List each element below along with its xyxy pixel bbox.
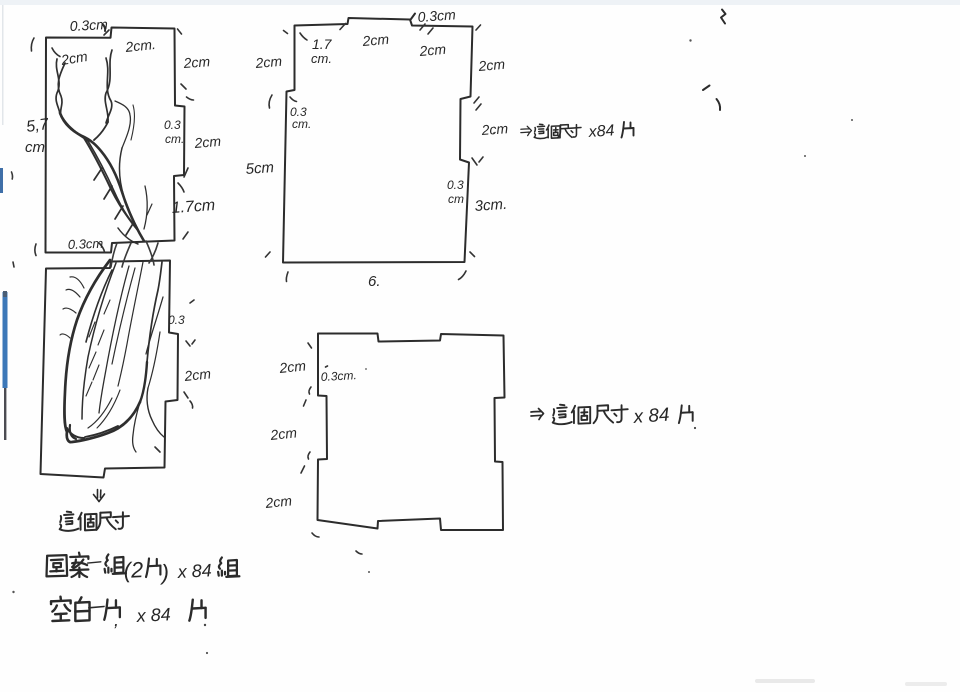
svg-text:,: , — [114, 610, 119, 630]
svg-text:2cm: 2cm — [183, 365, 212, 384]
svg-text:2cm: 2cm — [182, 53, 211, 71]
svg-text:2cm: 2cm — [269, 424, 298, 443]
svg-text:2cm: 2cm — [361, 31, 390, 49]
svg-text:cm.: cm. — [292, 117, 311, 131]
svg-text:x 84: x 84 — [632, 405, 670, 429]
svg-text:2cm: 2cm — [264, 492, 293, 511]
svg-text:cm: cm — [25, 139, 45, 156]
svg-text:x 84: x 84 — [135, 604, 171, 626]
svg-text:2cm.: 2cm. — [124, 36, 157, 55]
svg-text:2cm: 2cm — [254, 53, 283, 71]
svg-text:cm.: cm. — [165, 132, 184, 146]
svg-text:x84: x84 — [587, 122, 615, 141]
svg-text:cm.: cm. — [311, 51, 332, 66]
svg-text:0.3: 0.3 — [168, 313, 185, 327]
svg-text:0.3: 0.3 — [447, 178, 464, 192]
svg-text:0.3cm: 0.3cm — [68, 236, 104, 252]
svg-text:2cm: 2cm — [193, 133, 222, 151]
svg-text:1.7: 1.7 — [312, 36, 333, 52]
svg-text:0.3cm.: 0.3cm. — [320, 368, 357, 384]
svg-text:3cm.: 3cm. — [474, 196, 508, 215]
svg-text:5cm: 5cm — [245, 159, 274, 178]
svg-text:1.7cm: 1.7cm — [171, 197, 216, 217]
svg-text:2cm: 2cm — [278, 357, 307, 376]
svg-text:5,7: 5,7 — [25, 116, 50, 136]
svg-text:0.3cm: 0.3cm — [417, 6, 456, 25]
svg-text:2cm: 2cm — [418, 41, 447, 59]
svg-text:2cm: 2cm — [480, 120, 509, 138]
svg-text:x 84: x 84 — [176, 560, 212, 582]
svg-text:(2: (2 — [123, 557, 144, 583]
svg-text:2cm: 2cm — [477, 56, 506, 74]
svg-text:0.3cm: 0.3cm — [69, 16, 108, 34]
svg-text:6.: 6. — [368, 273, 381, 290]
svg-text:0.3: 0.3 — [164, 118, 181, 132]
svg-text:cm: cm — [448, 192, 464, 206]
